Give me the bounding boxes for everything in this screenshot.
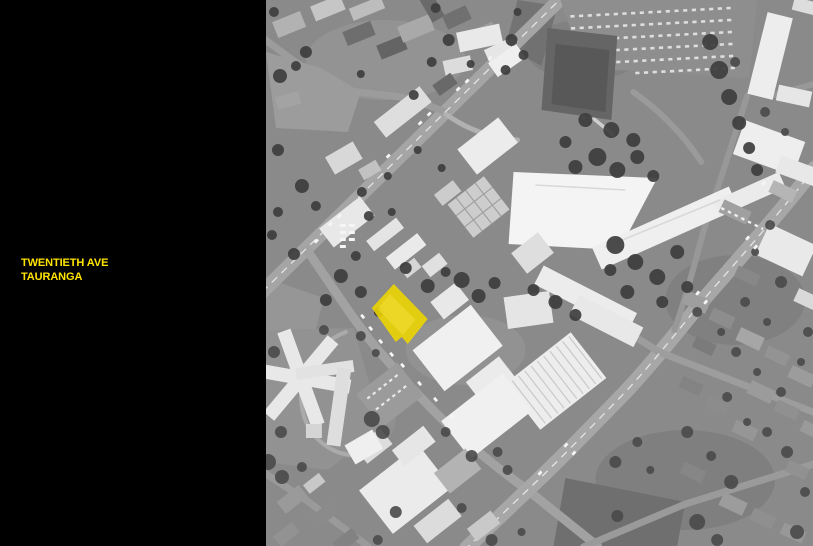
sports-field — [541, 28, 617, 120]
project-street: TWENTIETH AVE — [21, 257, 108, 271]
page: TWENTIETH AVE TAURANGA — [0, 0, 813, 546]
aerial-photo-svg — [266, 0, 813, 546]
project-title: TWENTIETH AVE TAURANGA — [21, 257, 108, 284]
project-city: TAURANGA — [21, 271, 108, 285]
title-panel: TWENTIETH AVE TAURANGA — [0, 0, 266, 546]
aerial-photo — [266, 0, 813, 546]
